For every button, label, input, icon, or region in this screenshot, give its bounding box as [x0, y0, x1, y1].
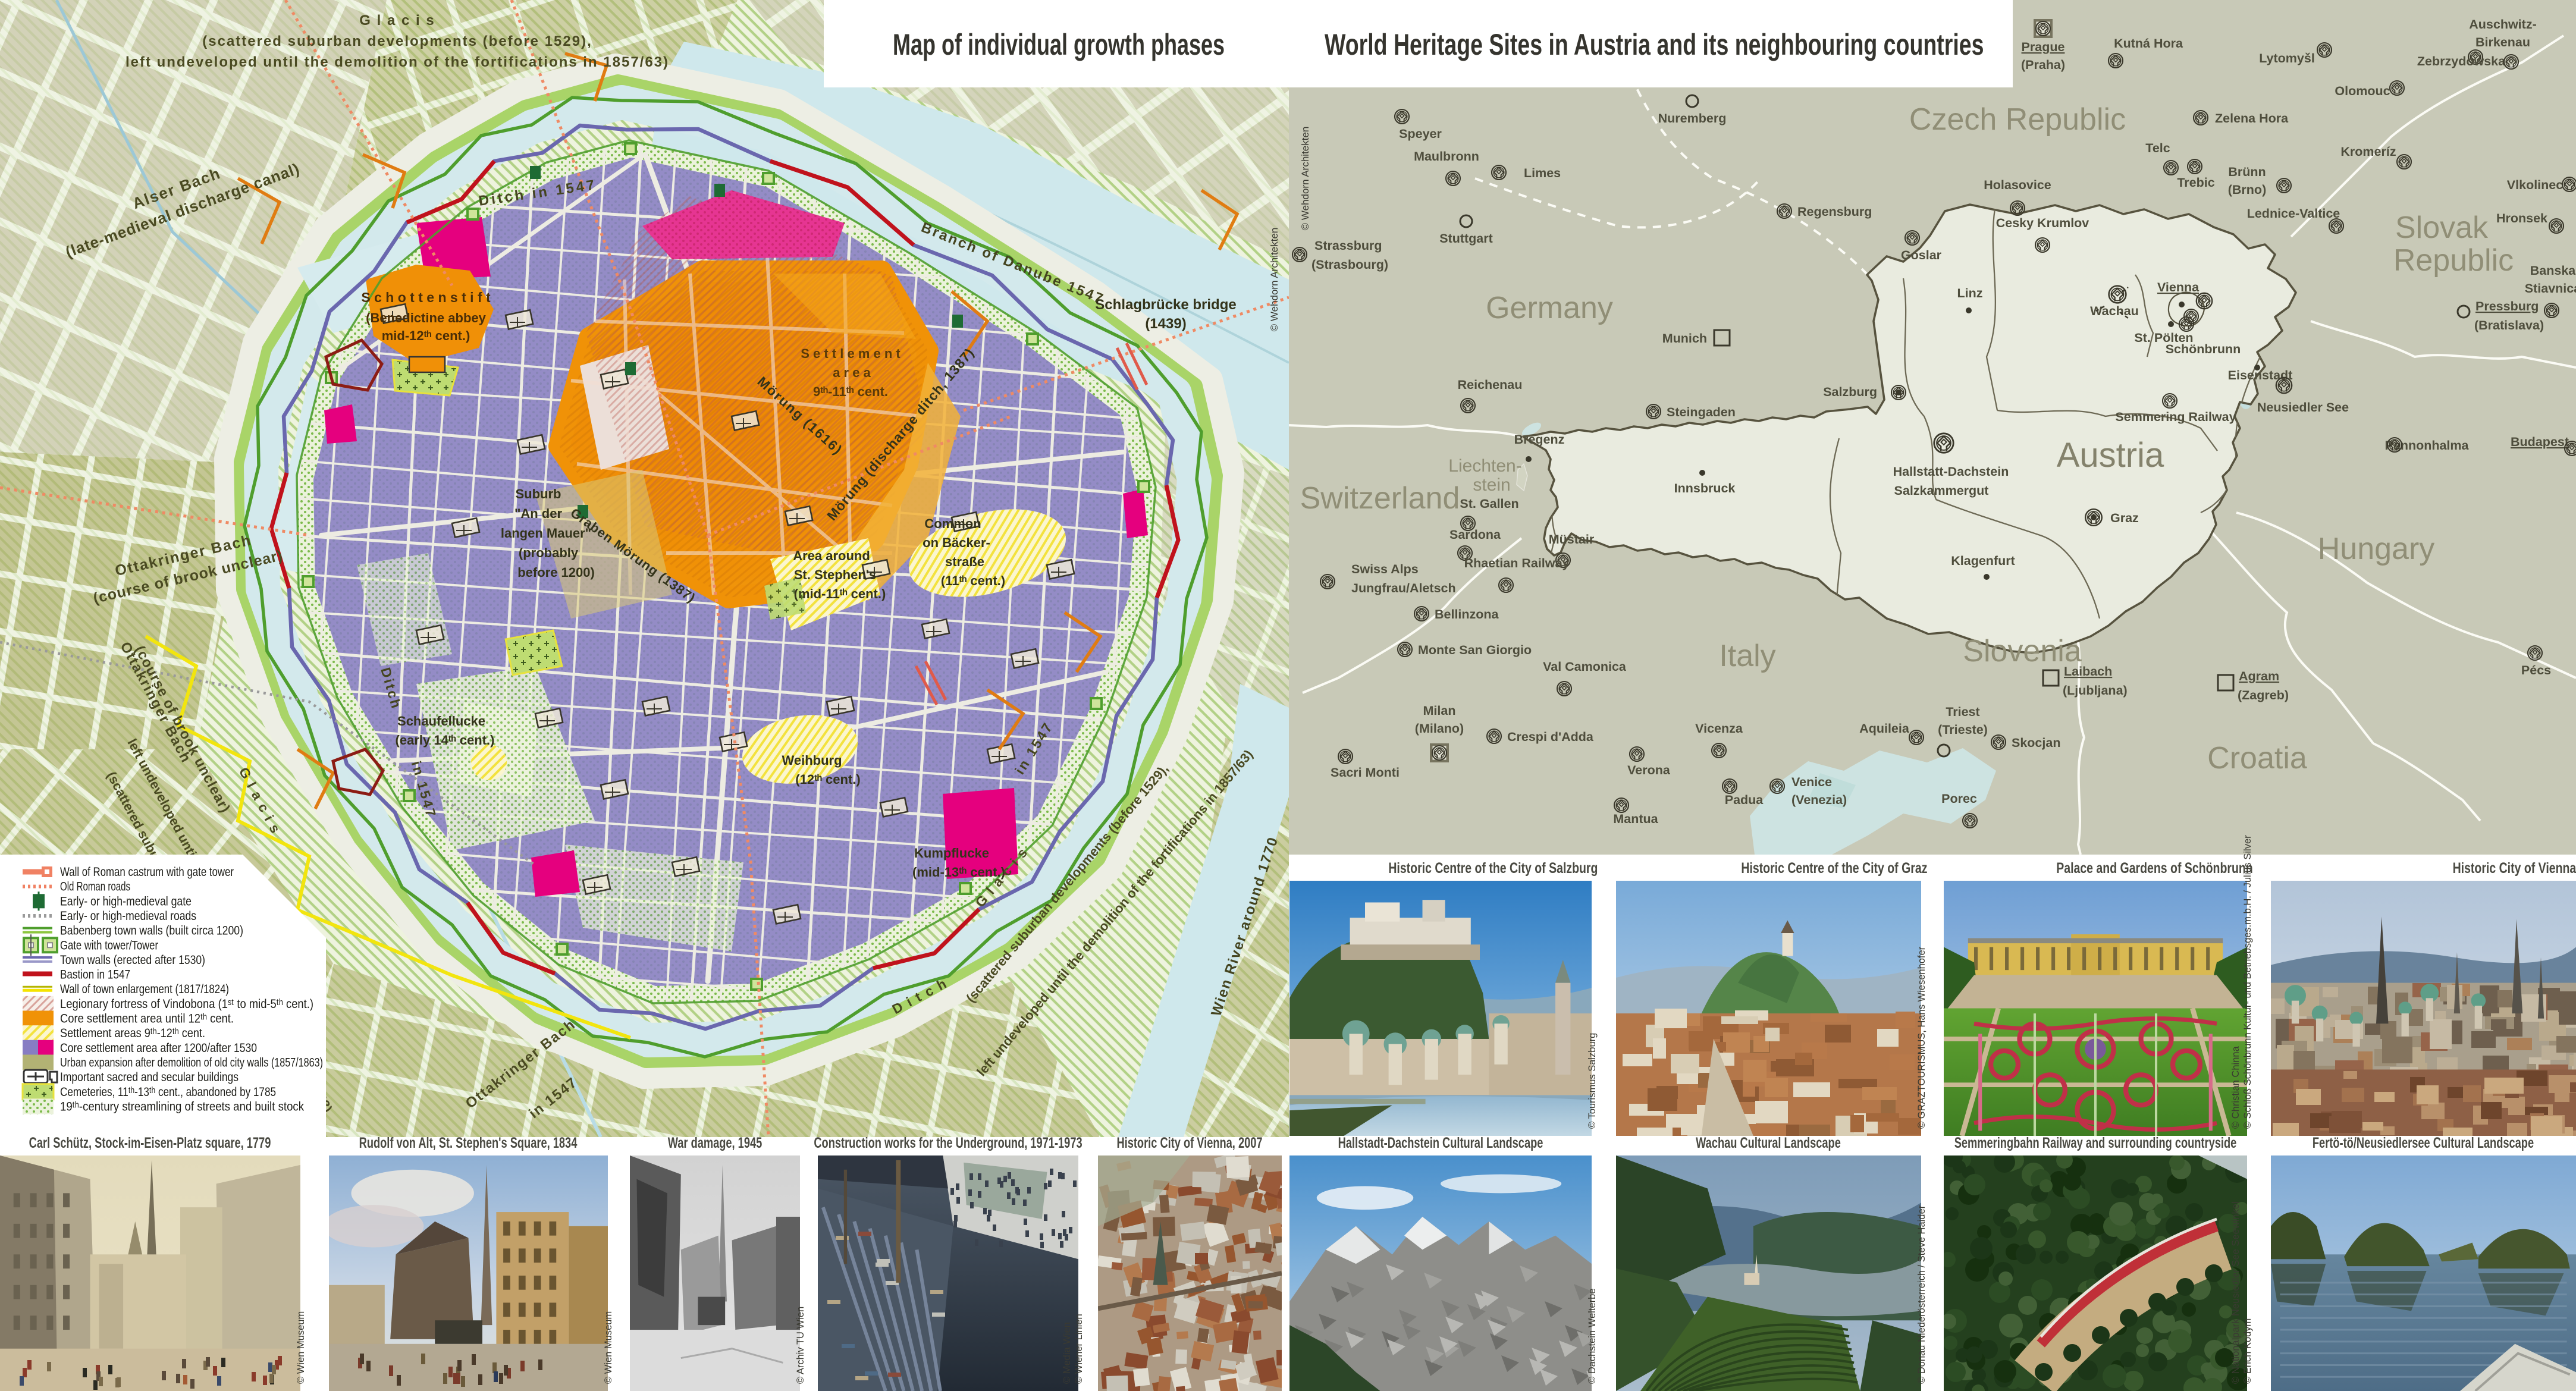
svg-text:Important sacred and secular b: Important sacred and secular buildings: [60, 1070, 239, 1084]
svg-text:Crespi d'Adda: Crespi d'Adda: [1507, 730, 1594, 744]
svg-text:Schönbrunn: Schönbrunn: [2166, 342, 2241, 356]
svg-text:Goslar: Goslar: [1901, 248, 1942, 262]
svg-text:Venice: Venice: [1791, 775, 1832, 789]
svg-text:Jungfrau/Aletsch: Jungfrau/Aletsch: [1351, 581, 1456, 595]
svg-text:(Zagreb): (Zagreb): [2238, 688, 2289, 702]
svg-text:(Praha): (Praha): [2021, 58, 2065, 72]
svg-text:Nuremberg: Nuremberg: [1658, 111, 1727, 125]
svg-text:Steingaden: Steingaden: [1667, 405, 1736, 419]
svg-text:Prague: Prague: [2022, 40, 2065, 54]
svg-text:Limes: Limes: [1524, 166, 1561, 180]
svg-text:(Venezia): (Venezia): [1791, 793, 1847, 807]
svg-text:Czech Republic: Czech Republic: [1909, 102, 2126, 137]
svg-text:Holasovice: Holasovice: [1984, 178, 2051, 192]
svg-text:Liechten-: Liechten-: [1448, 456, 1521, 476]
svg-text:Settlement areas 9ᵗʰ-12ᵗʰ cent: Settlement areas 9ᵗʰ-12ᵗʰ cent.: [60, 1026, 205, 1040]
svg-text:(Strasbourg): (Strasbourg): [1311, 258, 1388, 272]
svg-text:Croatia: Croatia: [2207, 741, 2307, 775]
svg-text:Lytomyšl: Lytomyšl: [2259, 51, 2315, 65]
svg-text:Birkenau: Birkenau: [2475, 35, 2530, 49]
svg-text:Early- or high-medieval roads: Early- or high-medieval roads: [60, 909, 196, 923]
svg-text:Sacri Monti: Sacri Monti: [1331, 765, 1400, 780]
svg-text:Wall of town enlargement (1817: Wall of town enlargement (1817/1824): [60, 982, 229, 996]
svg-text:Vicenza: Vicenza: [1695, 721, 1743, 736]
svg-text:Slovenia: Slovenia: [1963, 634, 2082, 668]
svg-text:(Brno): (Brno): [2228, 183, 2266, 197]
svg-text:Town walls (erected after 1530: Town walls (erected after 1530): [60, 953, 205, 967]
svg-text:Cemeteries, 11ᵗʰ-13ᵗʰ cent., a: Cemeteries, 11ᵗʰ-13ᵗʰ cent., abandoned b…: [60, 1085, 276, 1099]
svg-text:Padua: Padua: [1725, 793, 1764, 807]
svg-text:Early- or high-medieval gate: Early- or high-medieval gate: [60, 894, 192, 908]
svg-text:Milan: Milan: [1423, 704, 1456, 718]
svg-text:Innsbruck: Innsbruck: [1674, 481, 1736, 495]
svg-text:Germany: Germany: [1486, 291, 1613, 325]
svg-text:Schlagbrücke bridge: Schlagbrücke bridge: [1095, 297, 1236, 313]
svg-text:(Milano): (Milano): [1415, 721, 1464, 736]
svg-text:Bregenz: Bregenz: [1514, 432, 1565, 447]
svg-text:© Wehdorn Architekten: © Wehdorn Architekten: [1300, 127, 1311, 231]
svg-text:Semmering Railway: Semmering Railway: [2115, 410, 2236, 424]
svg-text:© Wehdorn Architekten: © Wehdorn Architekten: [1269, 228, 1280, 332]
svg-text:Porec: Porec: [1941, 792, 1977, 806]
svg-text:Slovak: Slovak: [2395, 211, 2489, 245]
svg-text:S e t t l e m e n t: S e t t l e m e n t: [801, 346, 900, 361]
svg-text:Suburb: Suburb: [516, 486, 561, 501]
svg-text:Area around: Area around: [793, 548, 870, 563]
svg-text:S c h o t t e n s t i f t: S c h o t t e n s t i f t: [361, 290, 491, 305]
svg-text:St. Gallen: St. Gallen: [1460, 497, 1518, 511]
svg-text:(early 14ᵗʰ cent.): (early 14ᵗʰ cent.): [396, 733, 495, 748]
svg-text:Wall of Roman castrum with gat: Wall of Roman castrum with gate tower: [60, 865, 234, 879]
svg-text:Bastion in 1547: Bastion in 1547: [60, 968, 130, 982]
svg-text:Core settlement area until 12ᵗ: Core settlement area until 12ᵗʰ cent.: [60, 1012, 234, 1026]
svg-text:9ᵗʰ-11ᵗʰ cent.: 9ᵗʰ-11ᵗʰ cent.: [813, 384, 888, 399]
svg-text:Lednice-Valtice: Lednice-Valtice: [2247, 206, 2340, 221]
svg-text:left undeveloped until the dem: left undeveloped until the demolition of…: [125, 54, 669, 70]
svg-text:on Bäcker-: on Bäcker-: [923, 535, 990, 550]
svg-text:Agram: Agram: [2239, 669, 2279, 683]
svg-text:Sardona: Sardona: [1449, 527, 1501, 542]
svg-text:Swiss Alps: Swiss Alps: [1351, 562, 1419, 576]
svg-text:Old Roman roads: Old Roman roads: [60, 880, 130, 894]
svg-text:(mid-11ᵗʰ cent.): (mid-11ᵗʰ cent.): [794, 586, 886, 601]
svg-text:Urban expansion after demoliti: Urban expansion after demolition of old …: [60, 1056, 323, 1069]
svg-text:Klagenfurt: Klagenfurt: [1951, 554, 2015, 568]
svg-text:Telc: Telc: [2145, 141, 2170, 155]
svg-text:Monte San Giorgio: Monte San Giorgio: [1418, 643, 1532, 657]
svg-text:Legionary fortress of Vindobon: Legionary fortress of Vindobona (1ˢᵗ to …: [60, 997, 313, 1011]
svg-text:before 1200): before 1200): [517, 565, 595, 580]
svg-text:(12ᵗʰ cent.): (12ᵗʰ cent.): [795, 772, 860, 787]
svg-text:(Ljubljana): (Ljubljana): [2063, 683, 2128, 698]
svg-text:Switzerland: Switzerland: [1300, 481, 1460, 516]
svg-text:Laibach: Laibach: [2064, 664, 2112, 679]
svg-text:Babenberg town walls (built ci: Babenberg town walls (built circa 1200): [60, 924, 243, 938]
svg-text:Core settlement area after 120: Core settlement area after 1200/after 15…: [60, 1041, 257, 1055]
svg-text:Mantua: Mantua: [1613, 812, 1658, 826]
svg-text:Salzburg: Salzburg: [1823, 385, 1877, 399]
svg-text:(scattered suburban developmen: (scattered suburban developments (before…: [202, 33, 592, 49]
svg-text:Vienna: Vienna: [2157, 280, 2200, 294]
svg-text:mid-12ᵗʰ cent.): mid-12ᵗʰ cent.): [382, 328, 470, 343]
svg-text:Pécs: Pécs: [2521, 663, 2551, 677]
svg-text:Banska: Banska: [2530, 263, 2576, 278]
svg-text:Common: Common: [924, 516, 981, 531]
svg-text:Gate with tower/Tower: Gate with tower/Tower: [60, 938, 158, 952]
svg-text:Stiavnica: Stiavnica: [2525, 281, 2576, 296]
svg-text:Olomouc: Olomouc: [2335, 84, 2390, 98]
svg-text:Kutná Hora: Kutná Hora: [2114, 36, 2183, 51]
svg-text:langen Mauer": langen Mauer": [501, 526, 591, 541]
svg-text:Cesky Krumlov: Cesky Krumlov: [1996, 216, 2089, 230]
svg-text:Skocjan: Skocjan: [2012, 736, 2060, 750]
svg-text:(1439): (1439): [1145, 316, 1186, 332]
svg-text:(probably: (probably: [519, 545, 579, 560]
svg-text:Kromeríz: Kromeríz: [2340, 145, 2396, 159]
svg-text:Schaufellucke: Schaufellucke: [397, 714, 485, 729]
svg-text:a r e a: a r e a: [833, 365, 871, 380]
svg-text:Hungary: Hungary: [2318, 532, 2435, 566]
svg-text:Salzkammergut: Salzkammergut: [1894, 483, 1989, 498]
svg-text:stein: stein: [1473, 475, 1510, 495]
svg-text:St. Stephen's: St. Stephen's: [794, 567, 876, 582]
svg-text:Zebrzydowska: Zebrzydowska: [2417, 54, 2506, 68]
svg-text:Republic: Republic: [2393, 243, 2514, 278]
svg-text:Stuttgart: Stuttgart: [1439, 231, 1493, 246]
svg-text:19ᵗʰ-century streamlining of s: 19ᵗʰ-century streamlining of streets and…: [60, 1100, 304, 1113]
svg-text:Hallstatt-Dachstein: Hallstatt-Dachstein: [1893, 464, 2009, 479]
svg-text:Trebic: Trebic: [2177, 175, 2214, 190]
svg-text:Weihburg: Weihburg: [782, 753, 842, 768]
svg-text:Rhaetian Railway: Rhaetian Railway: [1464, 556, 1570, 570]
svg-text:Austria: Austria: [2057, 436, 2164, 475]
svg-text:Pressburg: Pressburg: [2475, 299, 2539, 313]
svg-text:(Bratislava): (Bratislava): [2474, 318, 2544, 332]
svg-text:Graz: Graz: [2110, 511, 2139, 525]
svg-text:(Benedictine abbey: (Benedictine abbey: [366, 310, 486, 325]
svg-text:(11ᵗʰ cent.): (11ᵗʰ cent.): [941, 573, 1005, 588]
svg-text:Maulbronn: Maulbronn: [1414, 149, 1479, 164]
svg-text:Aquileia: Aquileia: [1859, 721, 1910, 736]
svg-text:Vlkolinec: Vlkolinec: [2507, 178, 2563, 192]
svg-text:Linz: Linz: [1957, 286, 1983, 300]
svg-text:Strassburg: Strassburg: [1314, 238, 1382, 253]
svg-text:straße: straße: [945, 554, 984, 569]
svg-text:Reichenau: Reichenau: [1458, 378, 1523, 392]
svg-text:Neusiedler See: Neusiedler See: [2257, 400, 2349, 415]
svg-text:"An der: "An der: [514, 506, 563, 521]
svg-text:Munich: Munich: [1662, 331, 1707, 346]
svg-text:Regensburg: Regensburg: [1797, 205, 1872, 219]
svg-text:G l a c i s: G l a c i s: [359, 12, 435, 29]
svg-text:Speyer: Speyer: [1399, 127, 1442, 141]
svg-text:Kumpflucke: Kumpflucke: [914, 846, 989, 861]
svg-text:Brünn: Brünn: [2228, 165, 2266, 179]
svg-text:Auschwitz-: Auschwitz-: [2469, 17, 2536, 32]
svg-text:Triest: Triest: [1946, 705, 1979, 719]
svg-text:Val Camonica: Val Camonica: [1543, 660, 1627, 674]
svg-text:Hronsek: Hronsek: [2496, 211, 2547, 225]
svg-text:Bellinzona: Bellinzona: [1435, 607, 1499, 621]
svg-text:Verona: Verona: [1627, 763, 1671, 777]
svg-text:Zelena Hora: Zelena Hora: [2215, 111, 2289, 125]
svg-text:Müstair: Müstair: [1549, 532, 1595, 547]
svg-text:(Trieste): (Trieste): [1938, 723, 1988, 737]
svg-text:Italy: Italy: [1719, 639, 1775, 673]
svg-text:Budapest: Budapest: [2511, 435, 2569, 449]
